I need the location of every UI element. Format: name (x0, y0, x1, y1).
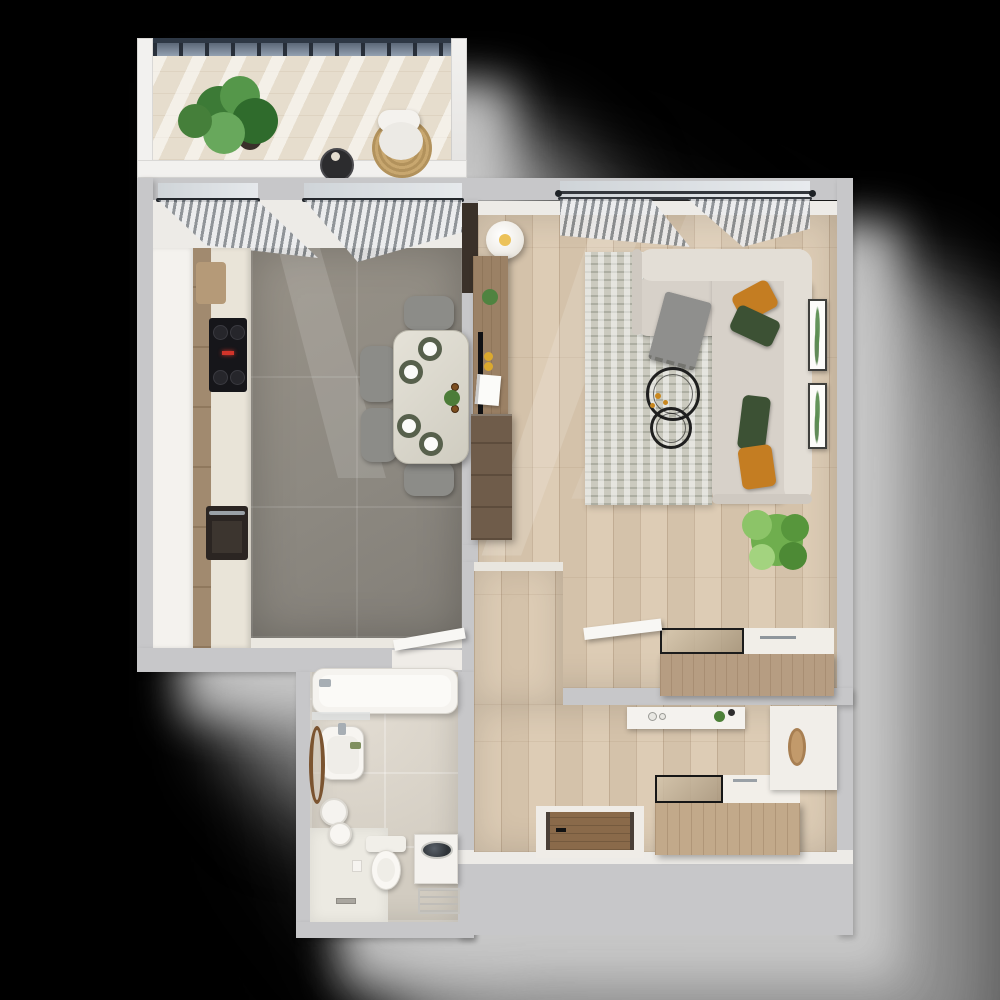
washing-machine (414, 834, 458, 884)
tv-cabinet (471, 414, 512, 540)
living-plant-leaf (742, 510, 772, 540)
drying-rack (418, 888, 460, 914)
console-plant (482, 289, 498, 305)
sideboard-handle (760, 636, 796, 639)
leaf-print (813, 388, 822, 444)
candle (451, 405, 459, 413)
balcony-chair-seat (379, 122, 423, 160)
wall-bath-west (296, 672, 310, 938)
cutting-board (196, 262, 226, 304)
sideboard-body (660, 654, 834, 696)
living-plant-leaf (749, 544, 775, 570)
wall-corridor-west (462, 562, 474, 672)
washer-drum (421, 841, 453, 859)
sideboard-white-top (744, 628, 834, 654)
glass-railing (153, 38, 451, 56)
botanical-frame (808, 299, 827, 371)
kitchen-cabinets-outer (153, 248, 193, 648)
living-plant-leaf (779, 542, 807, 570)
cooktop-display (222, 351, 234, 355)
glass-shelf (312, 712, 370, 720)
shower-drain (336, 898, 356, 904)
oval-mirror (788, 728, 806, 766)
kitchen-door-opening (392, 650, 462, 670)
corridor-floor (474, 562, 563, 705)
lemon-decor (484, 362, 493, 371)
dining-chair (360, 346, 396, 402)
shoe-cabinet-glass-top (655, 775, 723, 803)
gold-decor (663, 400, 668, 405)
cooktop (209, 318, 247, 392)
curtain-rod (558, 191, 812, 194)
outer-wall-west (137, 178, 153, 672)
oven-window (212, 521, 242, 553)
sofa-armrest (632, 249, 642, 335)
leaning-round-mirror (309, 726, 325, 804)
bathtub-basin (319, 675, 451, 707)
wall-bath-south (296, 922, 474, 938)
towel-roll (328, 822, 352, 846)
place-setting (397, 414, 421, 438)
soap-decor (350, 742, 361, 749)
lemon-decor (484, 352, 493, 361)
apartment-plan (0, 0, 1000, 1000)
render-canvas (0, 0, 1000, 1000)
shoe-cabinet-body (655, 803, 800, 855)
rod-finial (809, 190, 816, 197)
toilet-paper-holder (352, 860, 362, 872)
dining-chair (404, 296, 454, 330)
entry-door-handle (556, 828, 566, 832)
lamp-bulb (499, 234, 511, 246)
kitchen-cabinet-wood-strip (193, 248, 211, 648)
burner (230, 370, 245, 385)
place-setting (418, 337, 442, 361)
leaf-print (813, 304, 822, 366)
place-setting (419, 432, 443, 456)
glass-decor (648, 712, 657, 721)
rod-finial (555, 190, 562, 197)
sofa-armrest (712, 494, 812, 504)
botanical-frame (808, 383, 827, 449)
wall-hall-south-outer (458, 864, 853, 935)
bathtub (312, 668, 458, 714)
burner (213, 325, 228, 340)
balcony-candle (331, 152, 340, 161)
notebook (475, 374, 502, 406)
glass-decor (659, 713, 666, 720)
console-plant (714, 711, 725, 722)
burner (230, 325, 245, 340)
shoe-cabinet-handle (733, 779, 757, 782)
table-centerpiece-plant (444, 390, 460, 406)
kitchen-countertop (211, 248, 251, 648)
place-setting (399, 360, 423, 384)
dark-decor (728, 709, 735, 716)
living-plant-leaf (781, 514, 809, 542)
washbasin (320, 726, 364, 780)
balcony-wall-left (137, 38, 153, 178)
toilet-seat (377, 858, 395, 882)
balcony-plant-leaf (178, 104, 212, 138)
oven-handle (209, 511, 245, 515)
balcony-wall-right (451, 38, 467, 178)
dining-chair (404, 462, 454, 496)
sideboard-glass-top (660, 628, 744, 654)
basin-faucet (338, 723, 346, 735)
coffee-table-ring-inner (656, 413, 686, 443)
dining-chair (361, 408, 397, 462)
sofa-back-right (784, 249, 812, 502)
tub-faucet (319, 679, 331, 687)
burner (213, 370, 228, 385)
corridor-threshold (474, 562, 563, 571)
gold-decor (650, 403, 655, 408)
orange-pillow (737, 444, 777, 490)
built-in-oven (206, 506, 248, 560)
outer-wall-east (837, 178, 853, 935)
gold-decor (655, 393, 661, 399)
